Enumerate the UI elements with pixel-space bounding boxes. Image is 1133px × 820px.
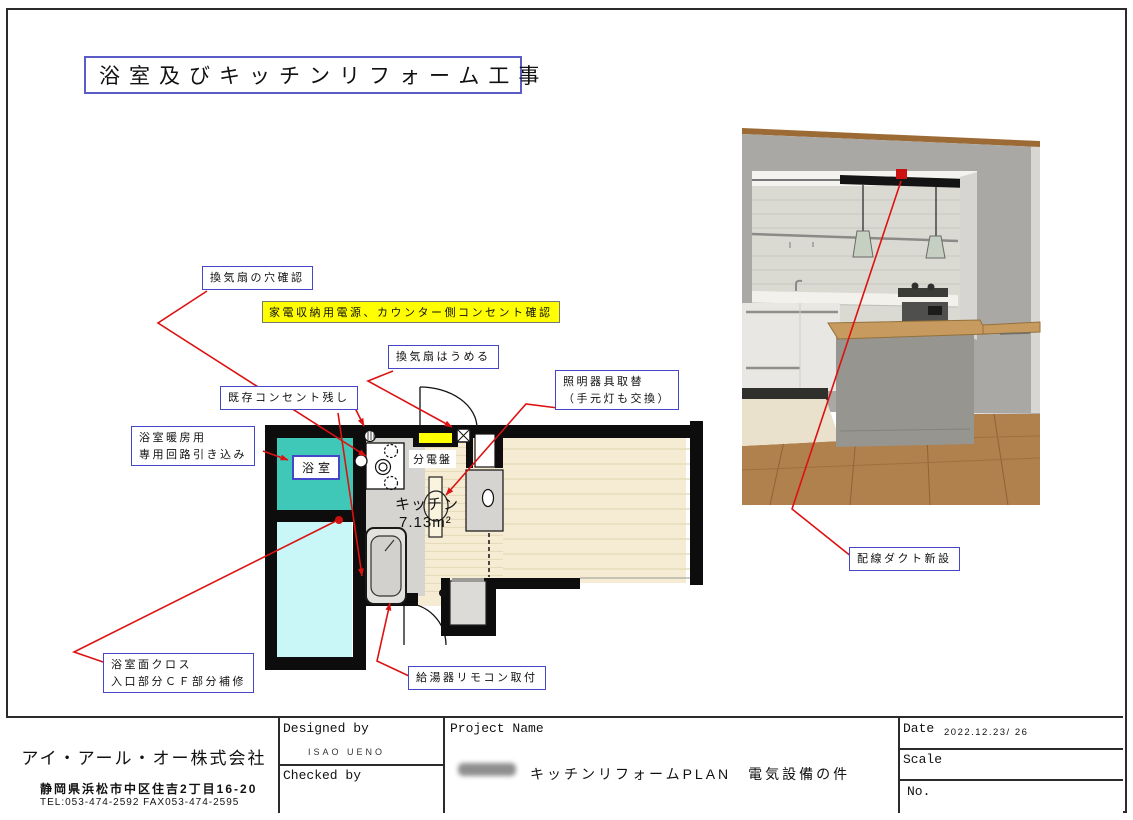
render-kitchen-floor (742, 399, 840, 446)
annotation-vent-fill: 換気扇はうめる (388, 345, 499, 369)
designed-by-value: ISAO UENO (308, 747, 385, 757)
plan-graphics (0, 0, 1133, 820)
outlet-symbol-top (365, 431, 376, 442)
date-label: Date (903, 721, 934, 736)
door-arc-top (420, 387, 477, 428)
distribution-board-symbol (413, 428, 458, 447)
annotation-heater-remote: 給湯器リモコン取付 (408, 666, 546, 690)
stove-symbol (366, 443, 404, 490)
render-image (742, 66, 1040, 505)
leader-vent-fill (368, 371, 452, 427)
render-stove (898, 288, 948, 297)
annotation-existing-outlet: 既存コンセント残し (220, 386, 358, 410)
render-duct-marker (896, 169, 907, 179)
floor-plan (265, 387, 703, 670)
wall-marker-dot (335, 516, 343, 524)
annotation-light-replace-line1: 照明器具取替 (563, 374, 671, 391)
annotation-bath-cloth: 浴室面クロス 入口部分ＣＦ部分補修 (103, 653, 254, 693)
annotation-bath-cloth-line2: 入口部分ＣＦ部分補修 (111, 674, 246, 691)
annotation-light-replace: 照明器具取替 （手元灯も交換） (555, 370, 679, 410)
scale-label: Scale (903, 752, 942, 767)
no-label: No. (907, 784, 930, 799)
redacted-client-name (458, 763, 516, 776)
annotation-bath-heating-line2: 専用回路引き込み (139, 447, 247, 464)
title-block-divider (443, 718, 445, 813)
annotation-bath-heating-line1: 浴室暖房用 (139, 430, 247, 447)
title-block-divider (898, 748, 1123, 750)
company-name: アイ・アール・オー株式会社 (18, 744, 270, 769)
annotation-vent-hole: 換気扇の穴確認 (202, 266, 313, 290)
vent-fan-symbol (457, 429, 470, 442)
second-room (275, 522, 352, 658)
bathroom-label: 浴室 (292, 455, 340, 480)
sink-symbol (366, 528, 406, 604)
annotation-bath-heating: 浴室暖房用 専用回路引き込み (131, 426, 255, 466)
checked-by-label: Checked by (283, 768, 361, 783)
date-value: 2022.12.23/ 26 (944, 727, 1028, 738)
project-name-label: Project Name (450, 721, 544, 736)
designed-by-label: Designed by (283, 721, 369, 736)
render-cabinets (742, 303, 840, 391)
vent-hole-symbol (355, 455, 367, 467)
annotation-bath-cloth-line1: 浴室面クロス (111, 657, 246, 674)
title-block-divider (278, 764, 443, 766)
project-name-value: キッチンリフォームPLAN 電気設備の件 (530, 764, 850, 784)
annotation-wiring-duct: 配線ダクト新設 (849, 547, 960, 571)
drawing-title-text: 浴室及びキッチンリフォーム工事 (99, 60, 548, 90)
render-pendant-light (853, 231, 873, 257)
drawing-sheet: 浴室及びキッチンリフォーム工事 換気扇の穴確認 家電収納用電源、カウンター側コン… (0, 0, 1133, 820)
panel-label: 分電盤 (409, 450, 456, 468)
annotation-appliance-power: 家電収納用電源、カウンター側コンセント確認 (262, 301, 560, 323)
title-block-divider (898, 718, 900, 813)
kitchen-area-label: 7.13m² (399, 514, 452, 531)
drawing-title: 浴室及びキッチンリフォーム工事 (84, 56, 522, 94)
company-tel-fax: TEL:053-474-2592 FAX053-474-2595 (40, 797, 239, 808)
kitchen-label: キッチン (395, 493, 459, 514)
company-address: 静岡県浜松市中区住吉2丁目16-20 (40, 780, 257, 797)
door-arc-bottom (404, 603, 446, 645)
annotation-light-replace-line2: （手元灯も交換） (563, 391, 671, 408)
title-block: アイ・アール・オー株式会社 静岡県浜松市中区住吉2丁目16-20 TEL:053… (6, 716, 1123, 813)
title-block-divider (898, 779, 1123, 781)
